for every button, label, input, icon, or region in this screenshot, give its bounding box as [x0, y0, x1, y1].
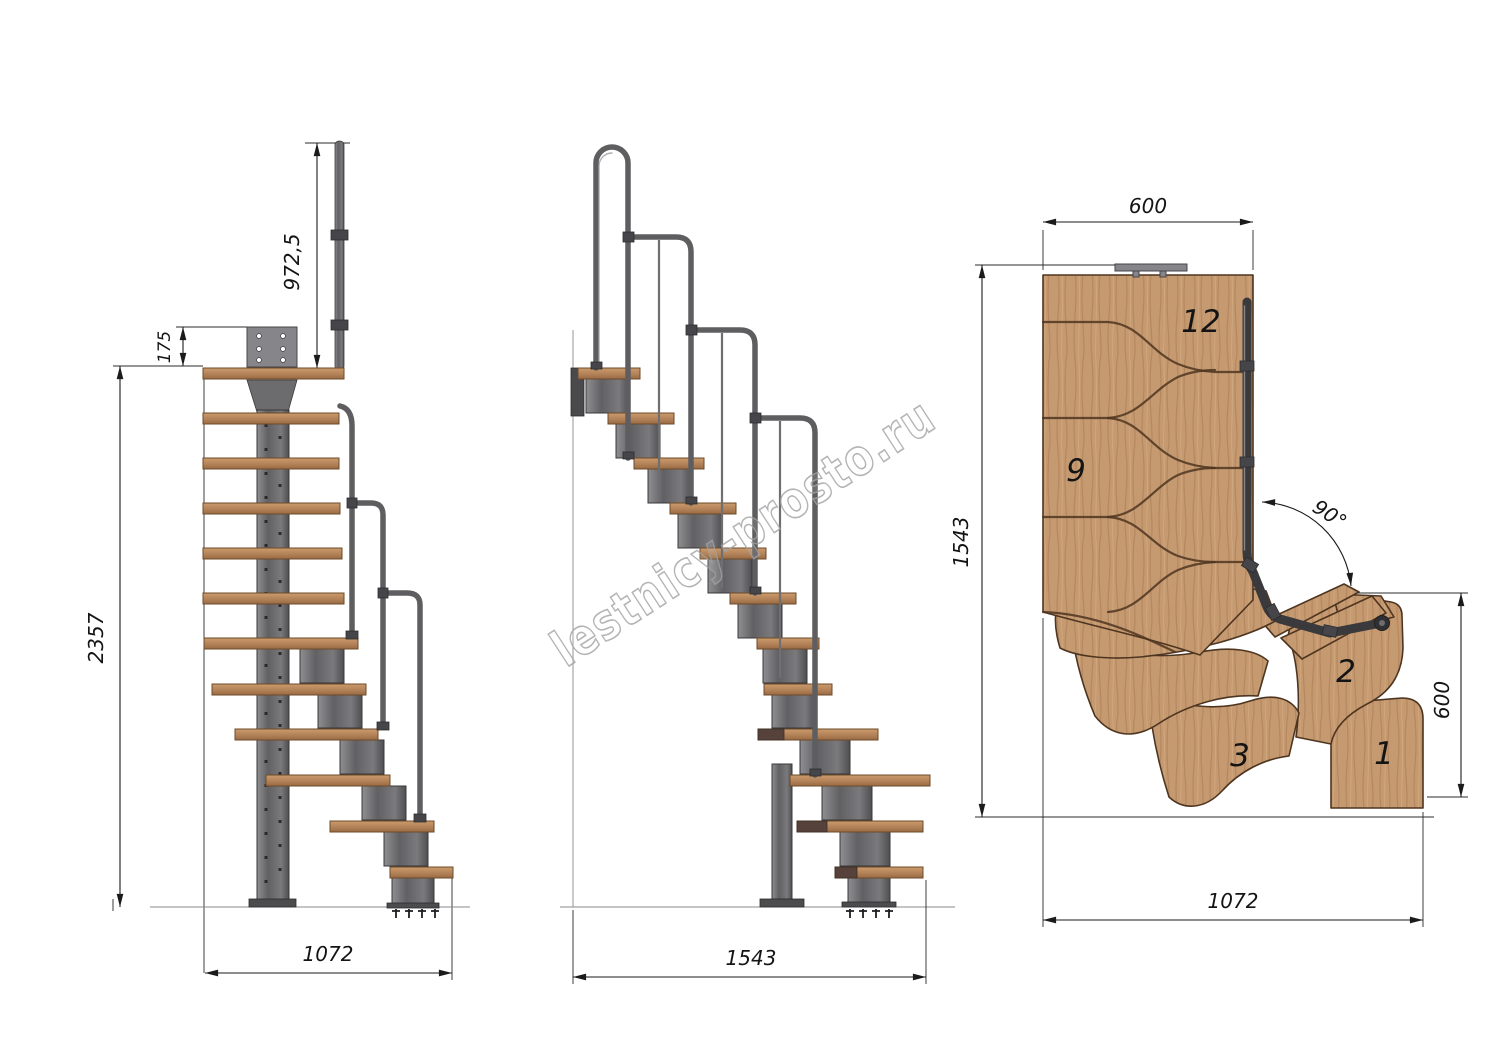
step-3-label: 3	[1230, 738, 1250, 774]
dim-depth: 1072	[205, 942, 452, 973]
step-12-label: 12	[1181, 304, 1220, 340]
total-height-value: 2357	[84, 612, 108, 663]
plan-length-value: 1543	[949, 517, 973, 568]
handrail-height-value: 972,5	[280, 233, 304, 290]
dim-plate-height: 175	[155, 327, 183, 366]
drawing-canvas: 972,5 175 2357 1072	[0, 0, 1500, 1061]
anchor-bolts	[846, 909, 893, 918]
handrail-post	[331, 141, 348, 370]
anchor-bolts	[392, 909, 439, 918]
plan-view: 12 9 2 3 1 600 1543 600 1072 90°	[949, 194, 1468, 927]
plan-width-value: 1072	[1208, 889, 1259, 913]
plan-handrail	[1240, 302, 1390, 637]
turn-angle-value: 90°	[1308, 494, 1351, 533]
handrail-end-cap-inner	[1379, 620, 1385, 626]
depth-value: 1072	[303, 942, 354, 966]
staircase-technical-drawing: 972,5 175 2357 1072	[0, 0, 1500, 1061]
step-2-label: 2	[1336, 654, 1356, 690]
flight-width-value: 600	[1129, 194, 1167, 218]
step-1-label: 1	[1374, 736, 1394, 772]
exit-width-value: 600	[1430, 681, 1454, 719]
front-width-value: 1543	[726, 946, 777, 970]
mounting-plate	[247, 327, 297, 367]
side-treads	[203, 368, 453, 878]
dim-flight-width: 600	[1043, 194, 1253, 270]
dim-turn-angle: 90°	[1262, 494, 1351, 586]
front-elevation-view: 1543	[560, 147, 955, 984]
step-9-label: 9	[1066, 453, 1086, 489]
support-column	[772, 764, 792, 899]
plate-height-value: 175	[155, 331, 175, 363]
dim-total-height: 2357	[84, 366, 120, 907]
side-elevation-view: 972,5 175 2357 1072	[84, 141, 470, 980]
